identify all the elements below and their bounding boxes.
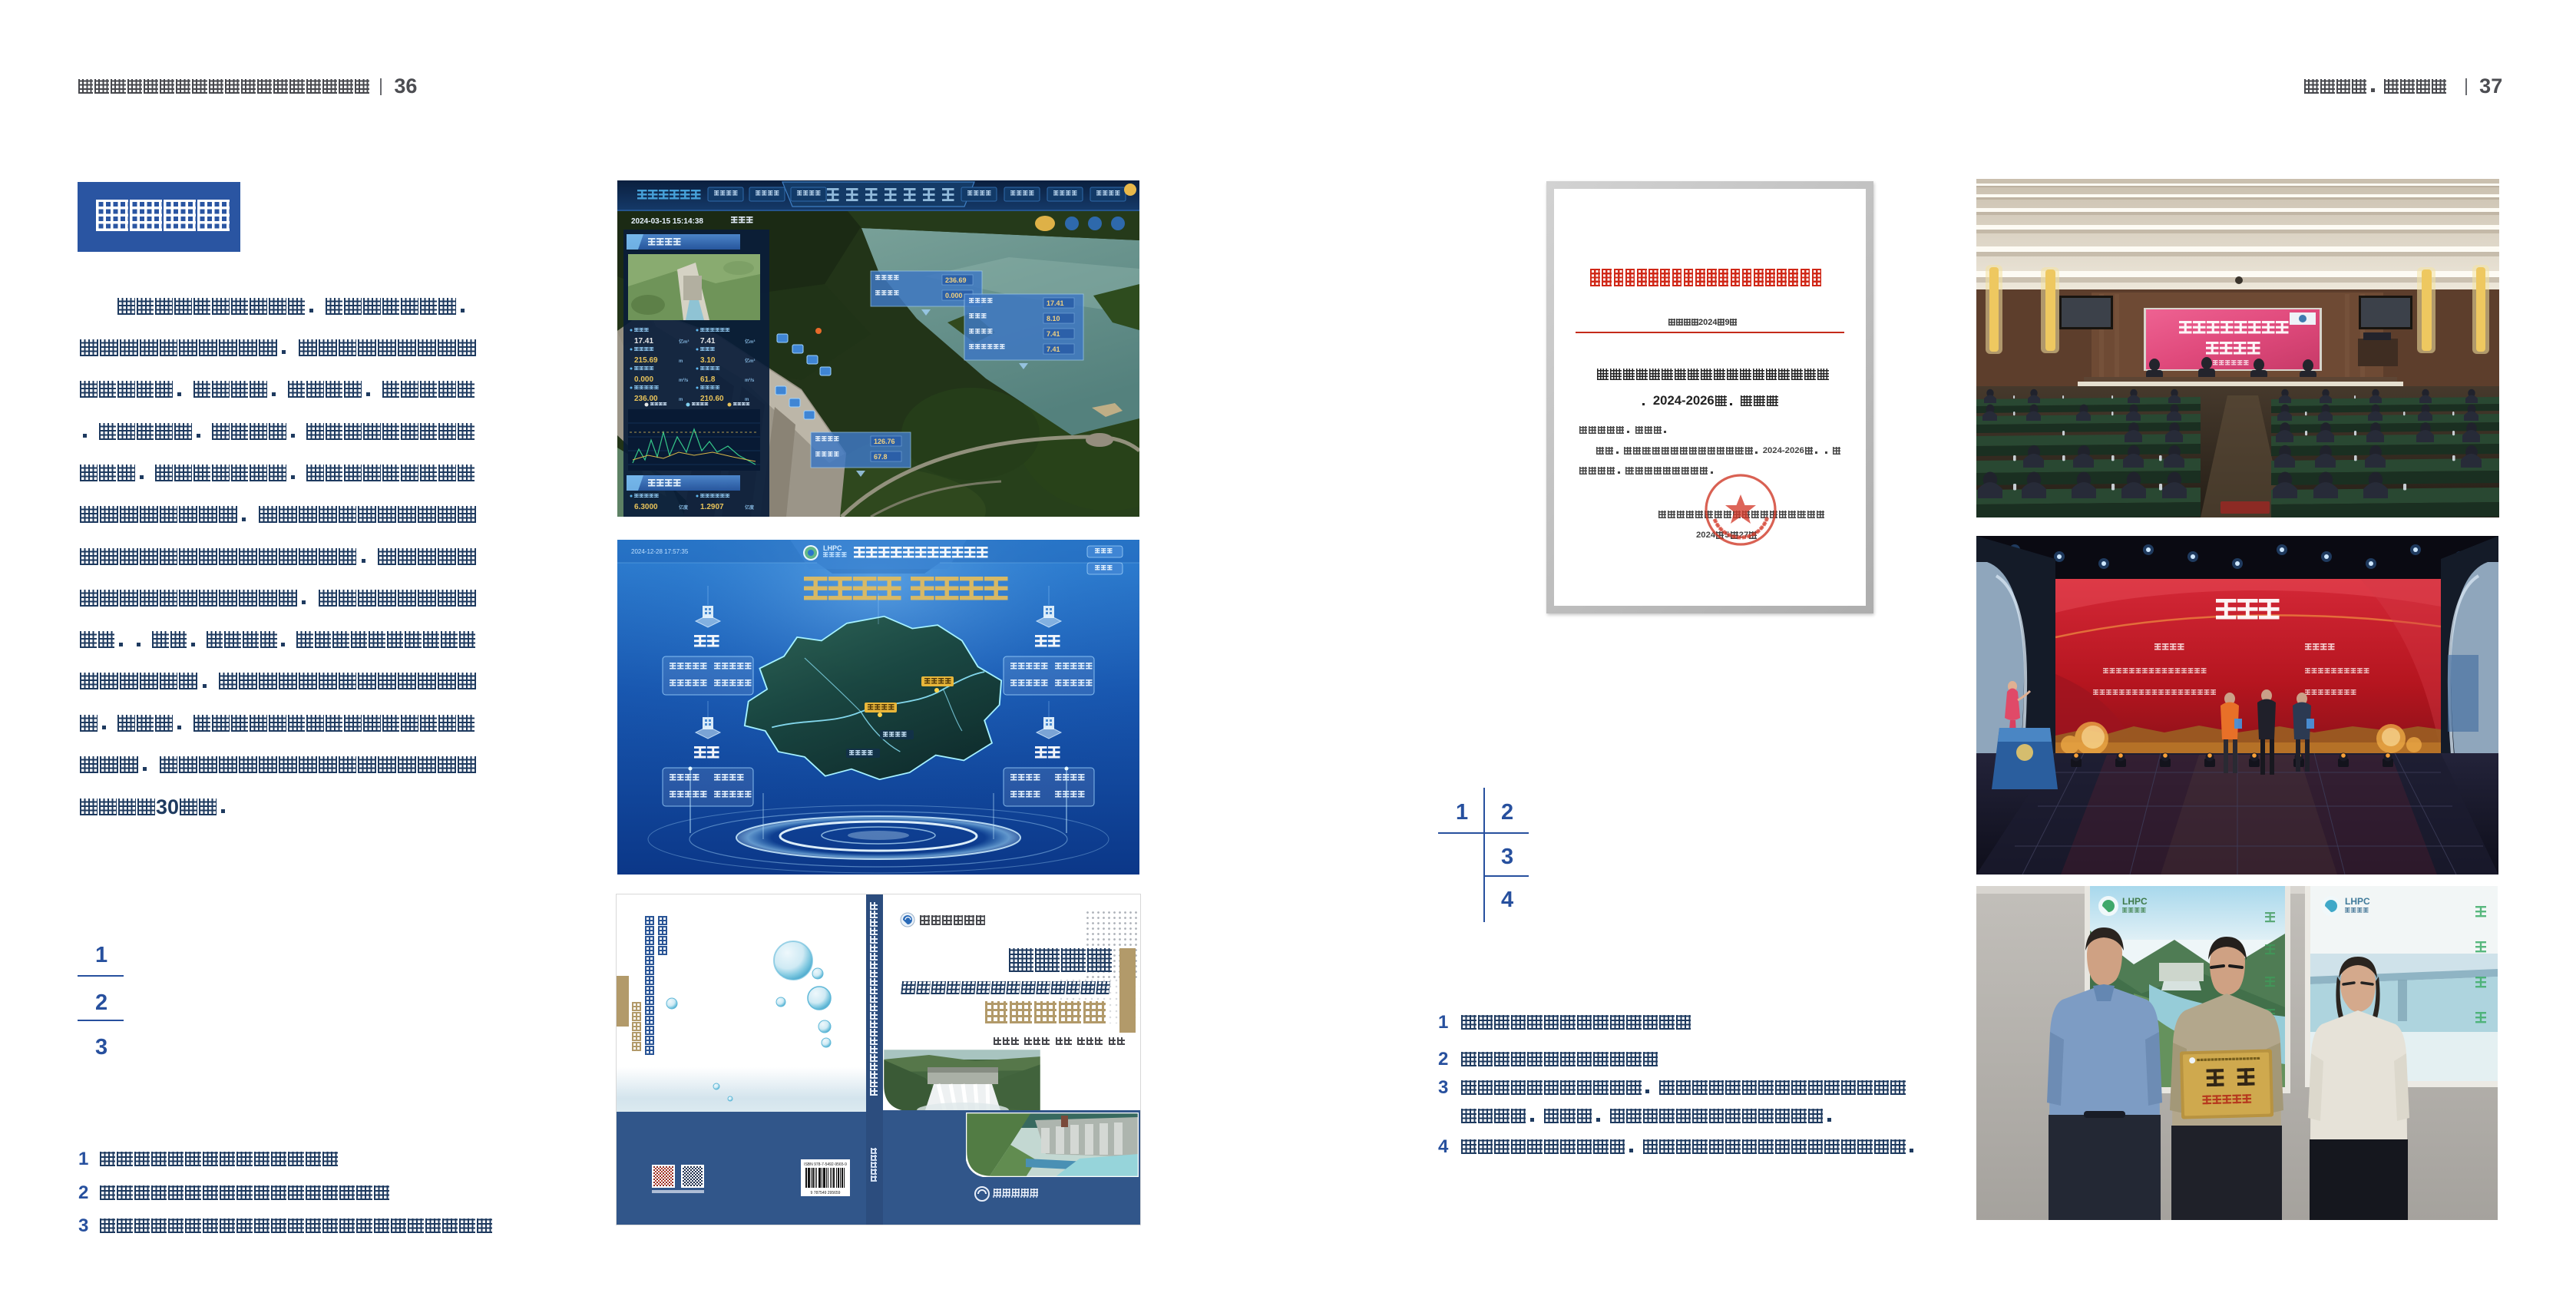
svg-text:7.41: 7.41 (700, 337, 716, 346)
svg-text:ISBN 978-7-5492-9565-9: ISBN 978-7-5492-9565-9 (804, 1162, 847, 1167)
svg-text:67.8: 67.8 (874, 453, 888, 461)
svg-text:61.8: 61.8 (700, 375, 716, 384)
svg-text:0.000: 0.000 (945, 292, 963, 299)
svg-text:7.41: 7.41 (1047, 346, 1060, 353)
svg-text:亿m³: 亿m³ (745, 339, 755, 345)
svg-text:m: m (745, 398, 749, 402)
svg-text:1.2907: 1.2907 (700, 503, 724, 511)
svg-text:215.69: 215.69 (634, 356, 658, 365)
svg-text:236.69: 236.69 (945, 276, 967, 284)
svg-text:2024-12-28 17:57:35: 2024-12-28 17:57:35 (631, 548, 689, 555)
svg-text:6.3000: 6.3000 (634, 503, 658, 511)
svg-text:2024-03-15 15:14:38: 2024-03-15 15:14:38 (631, 217, 703, 226)
svg-text:m: m (679, 398, 683, 402)
svg-text:17.41: 17.41 (634, 337, 653, 346)
svg-text:LHPC: LHPC (823, 544, 842, 552)
svg-text:236.00: 236.00 (634, 395, 658, 403)
svg-text:210.60: 210.60 (700, 395, 724, 403)
svg-text:0.000: 0.000 (634, 375, 653, 384)
svg-text:3.10: 3.10 (700, 356, 716, 365)
svg-text:亿度: 亿度 (679, 504, 689, 511)
svg-text:亿度: 亿度 (745, 504, 755, 511)
svg-text:8.10: 8.10 (1047, 315, 1060, 322)
svg-text:7.41: 7.41 (1047, 330, 1060, 338)
svg-text:m³/s: m³/s (679, 378, 689, 383)
svg-text:17.41: 17.41 (1047, 299, 1064, 307)
svg-text:9 787549 295659: 9 787549 295659 (811, 1191, 841, 1195)
svg-text:m: m (679, 359, 683, 364)
svg-text:LHPC: LHPC (2122, 896, 2148, 907)
svg-text:m³/s: m³/s (745, 378, 755, 383)
svg-text:亿m³: 亿m³ (679, 339, 689, 345)
svg-text:LHPC: LHPC (2345, 896, 2370, 907)
svg-text:126.76: 126.76 (874, 438, 895, 445)
svg-text:亿m³: 亿m³ (745, 358, 755, 364)
